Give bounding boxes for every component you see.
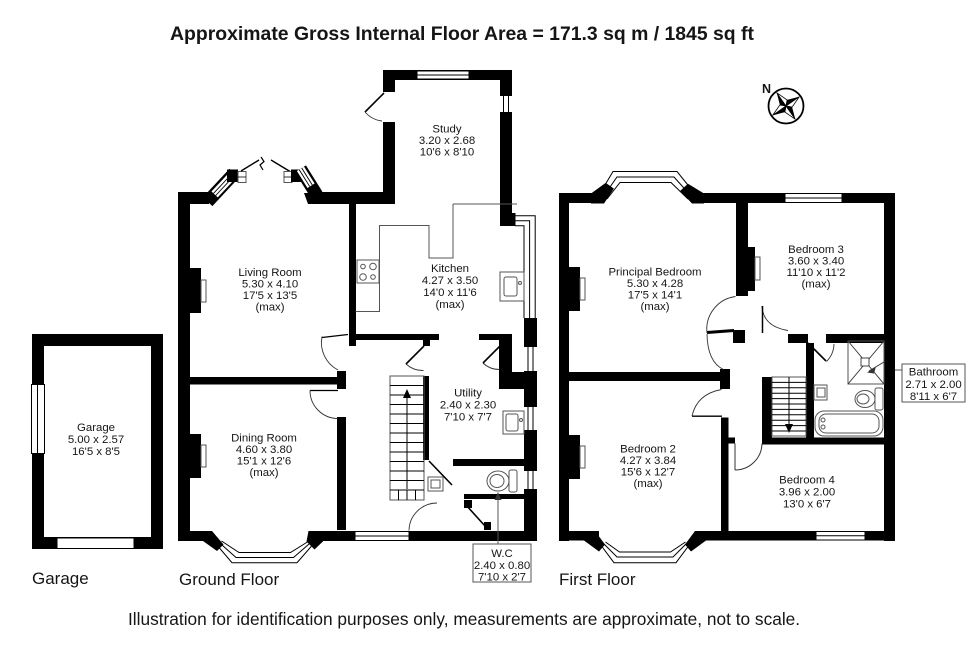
svg-text:Living Room: Living Room <box>238 267 301 279</box>
svg-text:(max): (max) <box>249 467 278 479</box>
svg-text:Bedroom 4: Bedroom 4 <box>779 475 835 487</box>
svg-text:Bathroom: Bathroom <box>909 367 958 379</box>
svg-text:11'10 x 11'2: 11'10 x 11'2 <box>786 267 845 279</box>
svg-text:Kitchen: Kitchen <box>431 263 469 275</box>
svg-text:5.00 x 2.57: 5.00 x 2.57 <box>68 434 124 446</box>
svg-text:2.71 x 2.00: 2.71 x 2.00 <box>905 379 961 391</box>
svg-text:Ground Floor: Ground Floor <box>179 570 279 589</box>
svg-text:10'6 x 8'10: 10'6 x 8'10 <box>420 147 474 159</box>
svg-text:4.27 x 3.84: 4.27 x 3.84 <box>620 455 676 467</box>
svg-text:17'5 x 13'5: 17'5 x 13'5 <box>243 290 297 302</box>
svg-text:17'5 x 14'1: 17'5 x 14'1 <box>628 290 682 302</box>
svg-text:5.30 x 4.10: 5.30 x 4.10 <box>242 279 298 291</box>
svg-text:7'10 x 7'7: 7'10 x 7'7 <box>444 412 492 424</box>
svg-text:(max): (max) <box>640 301 669 313</box>
svg-text:Garage: Garage <box>77 422 115 434</box>
svg-text:4.60 x 3.80: 4.60 x 3.80 <box>236 444 292 456</box>
svg-text:13'0 x 6'7: 13'0 x 6'7 <box>783 499 831 511</box>
svg-text:(max): (max) <box>435 299 464 311</box>
svg-text:15'1 x 12'6: 15'1 x 12'6 <box>237 456 291 468</box>
svg-text:W.C: W.C <box>491 548 513 560</box>
svg-text:Garage: Garage <box>32 569 89 588</box>
svg-text:First Floor: First Floor <box>559 570 636 589</box>
svg-text:Dining Room: Dining Room <box>231 433 297 445</box>
svg-text:Illustration for identificatio: Illustration for identification purposes… <box>128 609 800 629</box>
svg-text:4.27 x 3.50: 4.27 x 3.50 <box>422 275 478 287</box>
svg-text:3.20 x 2.68: 3.20 x 2.68 <box>419 135 475 147</box>
svg-text:N: N <box>762 82 771 96</box>
svg-text:5.30 x 4.28: 5.30 x 4.28 <box>627 278 683 290</box>
svg-text:Utility: Utility <box>454 388 482 400</box>
svg-text:3.60 x 3.40: 3.60 x 3.40 <box>788 256 844 268</box>
svg-text:14'0 x 11'6: 14'0 x 11'6 <box>423 287 477 299</box>
svg-text:Approximate Gross Internal Flo: Approximate Gross Internal Floor Area = … <box>170 23 754 45</box>
svg-text:Bedroom 3: Bedroom 3 <box>788 244 844 256</box>
svg-text:7'10 x 2'7: 7'10 x 2'7 <box>478 572 526 584</box>
svg-text:2.40 x 2.30: 2.40 x 2.30 <box>440 400 496 412</box>
svg-text:(max): (max) <box>255 302 284 314</box>
svg-text:(max): (max) <box>801 279 830 291</box>
svg-text:15'6 x 12'7: 15'6 x 12'7 <box>621 467 675 479</box>
svg-text:3.96 x 2.00: 3.96 x 2.00 <box>779 487 835 499</box>
svg-text:Principal Bedroom: Principal Bedroom <box>608 267 701 279</box>
svg-text:Study: Study <box>432 124 461 136</box>
svg-text:2.40 x 0.80: 2.40 x 0.80 <box>474 560 530 572</box>
svg-text:Bedroom 2: Bedroom 2 <box>620 444 676 456</box>
svg-text:(max): (max) <box>633 478 662 490</box>
svg-text:8'11 x 6'7: 8'11 x 6'7 <box>910 391 957 403</box>
svg-text:16'5 x 8'5: 16'5 x 8'5 <box>72 446 120 458</box>
